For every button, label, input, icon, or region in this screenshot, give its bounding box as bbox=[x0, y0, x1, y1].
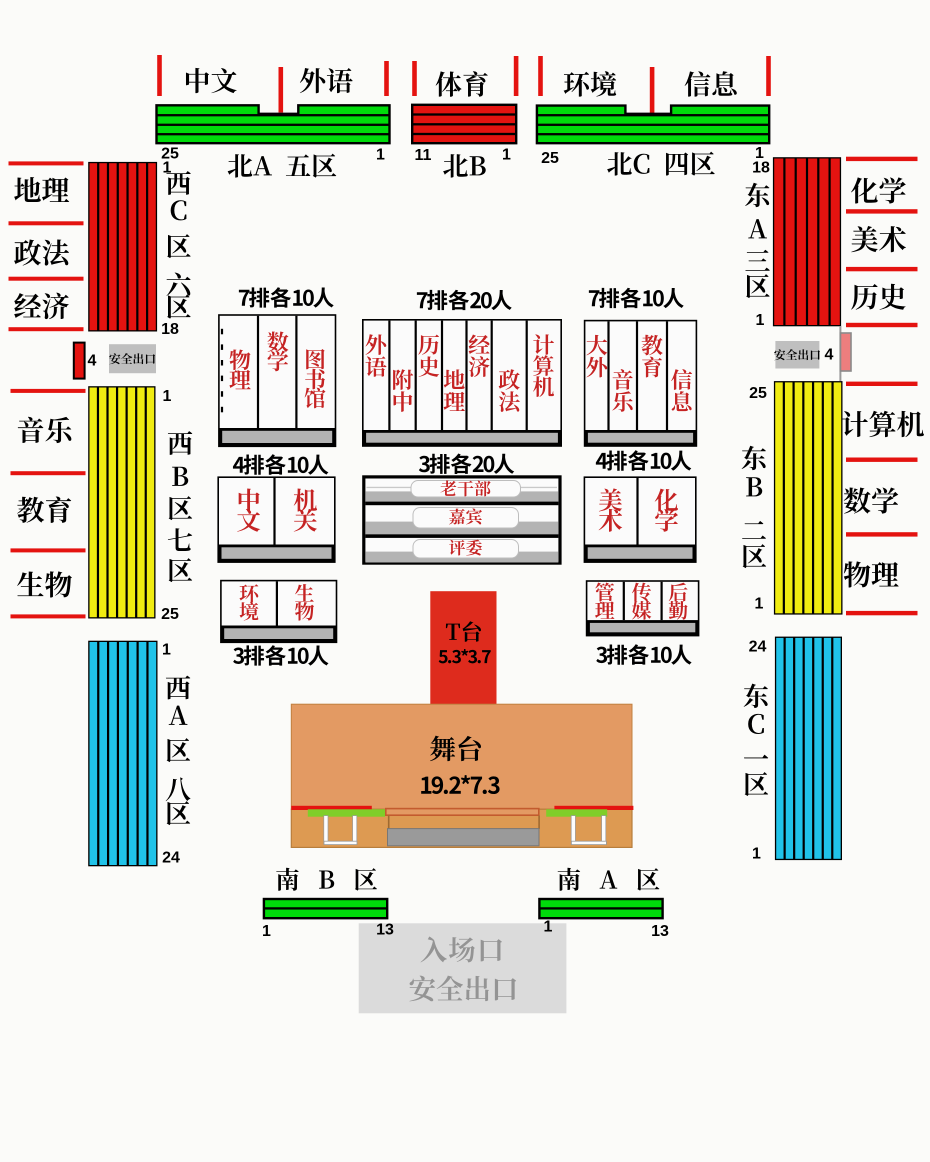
svg-text:1: 1 bbox=[755, 596, 764, 613]
svg-text:1: 1 bbox=[162, 642, 171, 659]
svg-text:1: 1 bbox=[752, 846, 761, 863]
svg-text:25: 25 bbox=[749, 385, 767, 402]
svg-text:11: 11 bbox=[415, 147, 432, 164]
svg-text:1: 1 bbox=[163, 160, 172, 177]
svg-text:25: 25 bbox=[541, 150, 559, 167]
svg-text:4: 4 bbox=[88, 353, 97, 370]
svg-text:1: 1 bbox=[163, 388, 172, 405]
svg-text:13: 13 bbox=[651, 923, 669, 940]
svg-text:18: 18 bbox=[752, 160, 770, 177]
svg-text:25: 25 bbox=[161, 606, 179, 623]
svg-text:1: 1 bbox=[756, 312, 765, 329]
svg-text:1: 1 bbox=[376, 147, 385, 164]
svg-text:1: 1 bbox=[544, 919, 553, 936]
svg-text:24: 24 bbox=[749, 639, 767, 656]
svg-text:18: 18 bbox=[161, 321, 179, 338]
svg-text:1: 1 bbox=[502, 147, 511, 164]
svg-text:1: 1 bbox=[262, 923, 271, 940]
svg-text:24: 24 bbox=[162, 850, 180, 867]
svg-text:13: 13 bbox=[376, 922, 394, 939]
svg-text:4: 4 bbox=[825, 347, 834, 364]
